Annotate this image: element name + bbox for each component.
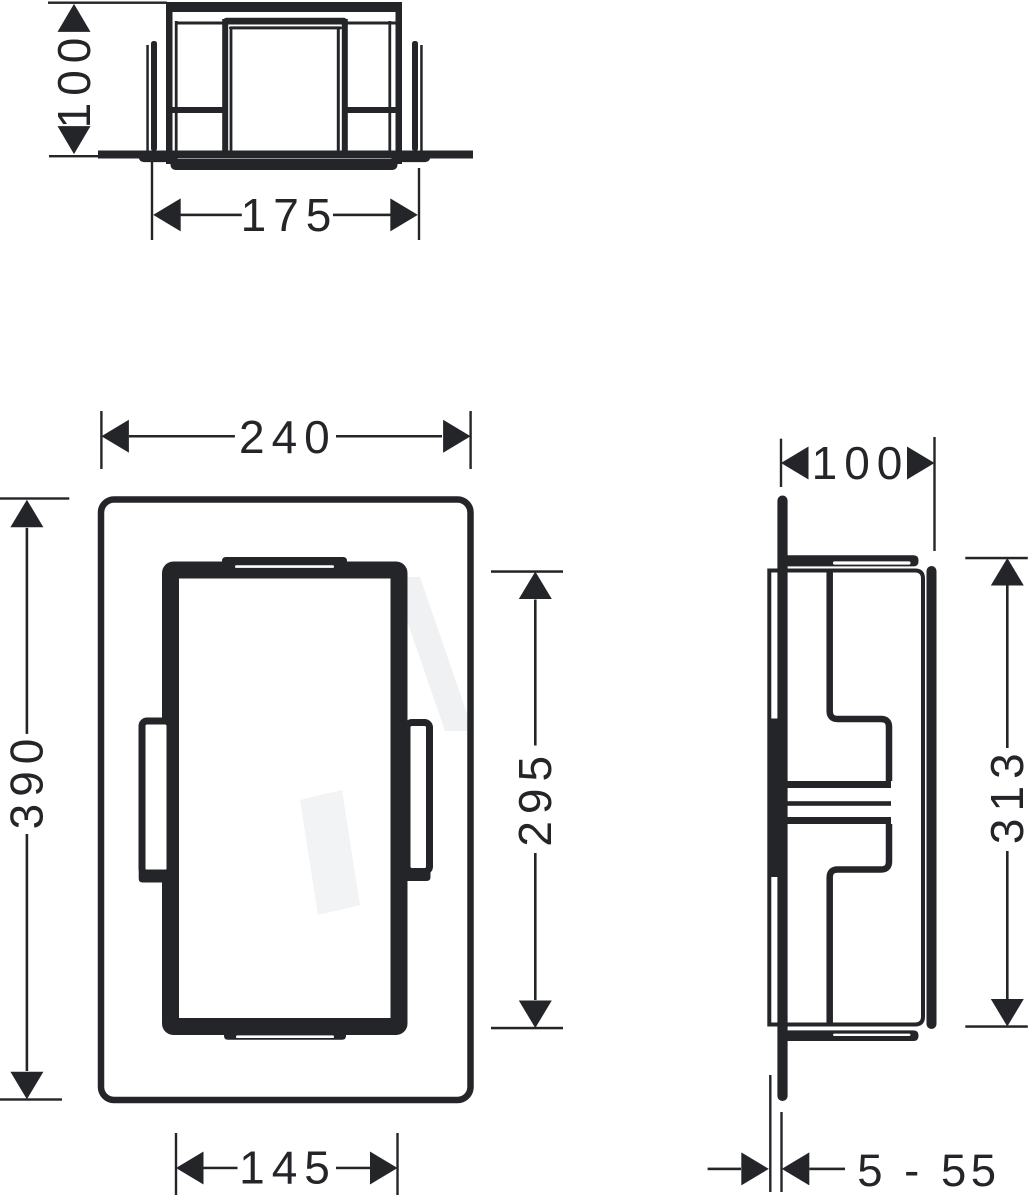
svg-text:313: 313 (981, 746, 1033, 844)
svg-text:100: 100 (48, 31, 100, 129)
svg-text:145: 145 (239, 1142, 337, 1194)
svg-text:390: 390 (1, 732, 53, 830)
svg-text:295: 295 (509, 749, 561, 847)
svg-text:5 - 55: 5 - 55 (857, 1145, 1000, 1196)
svg-text:240: 240 (239, 411, 337, 463)
svg-text:100: 100 (812, 437, 910, 489)
svg-text:175: 175 (241, 189, 339, 241)
